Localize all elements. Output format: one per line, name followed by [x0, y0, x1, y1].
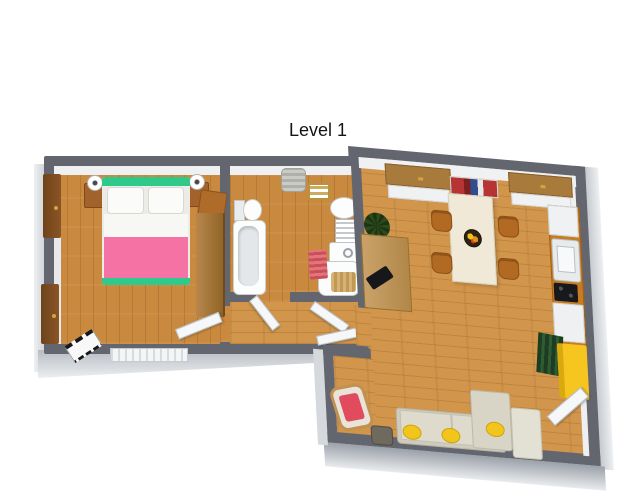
floorplan-canvas: Level 1 — [0, 0, 636, 500]
dining-chair — [431, 252, 453, 275]
duckboard-mat — [331, 272, 356, 292]
dining-chair — [431, 209, 453, 232]
double-bed — [102, 177, 190, 285]
radiator — [110, 348, 188, 362]
laundry-basket — [281, 168, 306, 192]
bed-headboard — [102, 177, 190, 186]
kitchen-sink — [551, 238, 581, 283]
bed-blanket — [104, 237, 188, 278]
pillow — [107, 187, 144, 214]
side-table — [371, 425, 394, 446]
ottoman — [510, 407, 543, 460]
built-in-wardrobe-lower — [41, 284, 59, 344]
chaise — [470, 390, 513, 452]
towel-shelf — [308, 183, 330, 200]
striped-bath-mat — [308, 249, 328, 279]
rocking-chair-cushion — [338, 393, 365, 422]
bed-footboard — [102, 278, 190, 285]
bed-sheet — [104, 214, 188, 237]
dining-chair — [497, 215, 519, 238]
pillow — [148, 187, 184, 214]
cooktop — [553, 282, 578, 302]
kitchen-upper-cabinet — [547, 205, 578, 238]
bathtub — [233, 220, 266, 295]
table-lamp-icon — [87, 175, 103, 191]
bathtub-basin — [238, 226, 259, 286]
table-lamp-icon — [189, 174, 205, 190]
level-title: Level 1 — [0, 120, 636, 141]
tall-wardrobe — [196, 213, 225, 317]
built-in-wardrobe-upper — [43, 174, 61, 238]
toilet — [243, 199, 262, 221]
door-opening-floor — [354, 305, 372, 347]
living-room-block — [348, 146, 613, 480]
dining-chair — [498, 257, 520, 280]
